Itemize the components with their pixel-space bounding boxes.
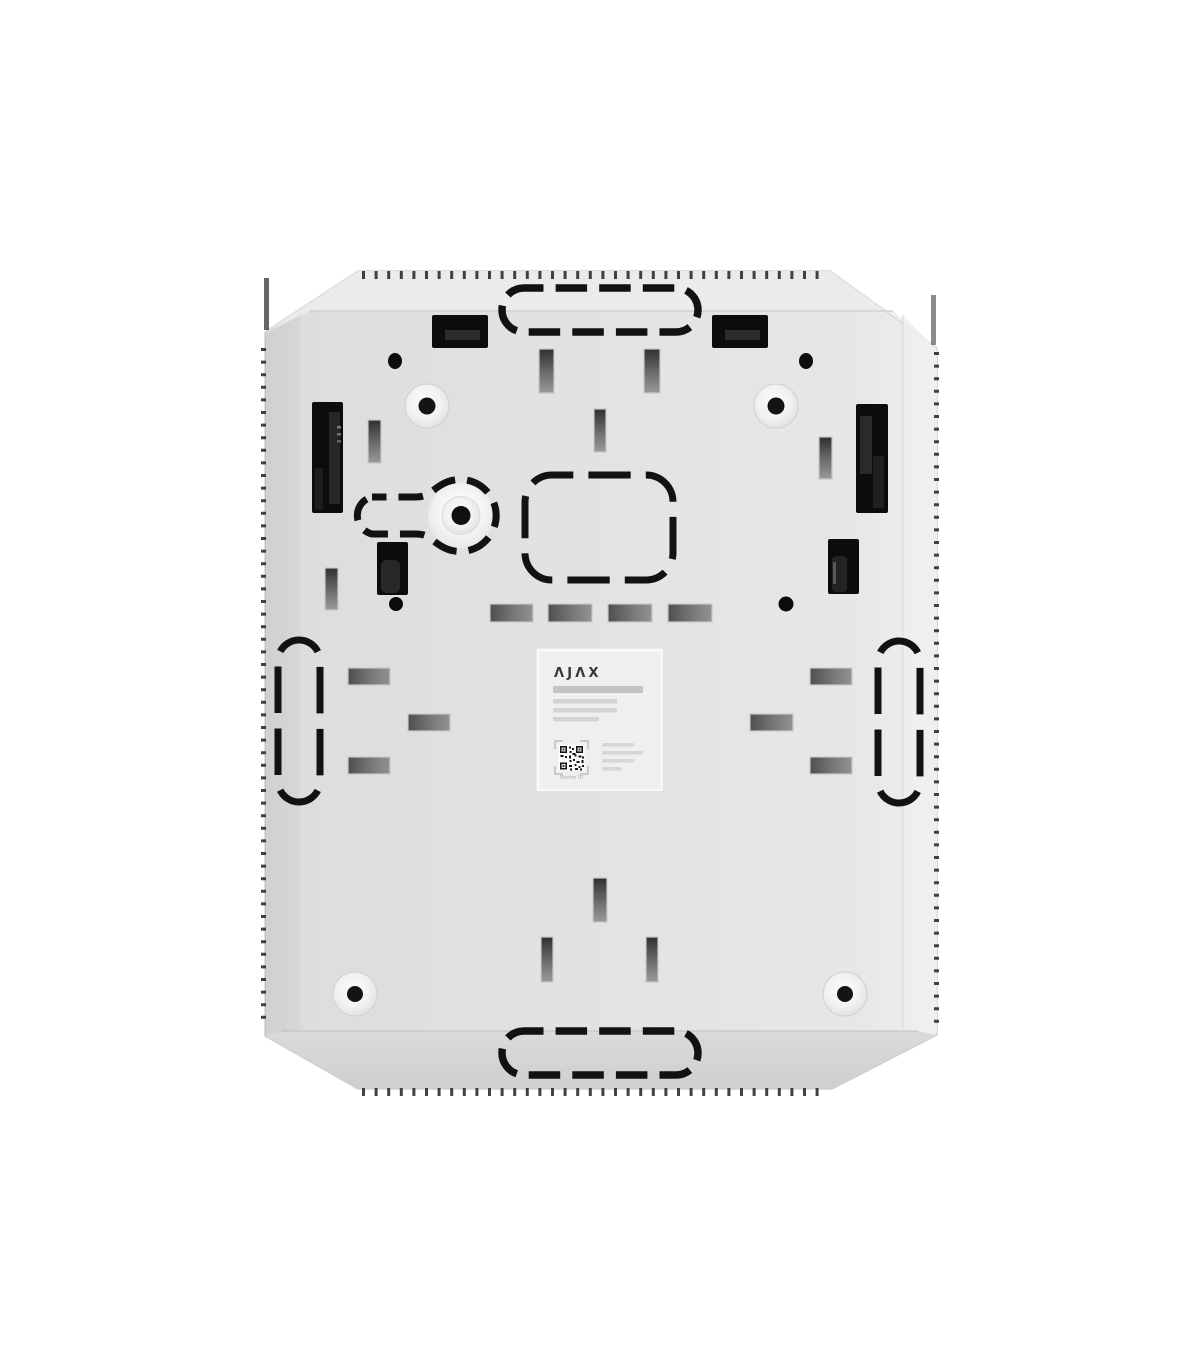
side-opening-left-detail-b: [315, 468, 323, 510]
side-opening-right-detail-a: [860, 416, 872, 474]
panel-left-bevel: [265, 315, 300, 1034]
product-photo: ΛJΛX Device ID: [0, 0, 1200, 1372]
teeth-corner-top-right: [931, 295, 936, 345]
screw-hole-keyhole: [452, 506, 471, 525]
slot-lower-left: [325, 568, 338, 610]
slot-side-left-top: [348, 668, 390, 685]
slot-row-1: [490, 604, 533, 622]
hole-top-right: [799, 353, 813, 369]
slot-left-connector: [368, 420, 381, 463]
top-clip-inner-right: [725, 330, 760, 340]
screw-boss-top-right: [754, 384, 798, 428]
side-opening-left-tick3: [337, 440, 341, 443]
slot-bottom-left: [541, 937, 553, 982]
hole-mid-left: [389, 597, 403, 611]
label-right-line-2: [602, 751, 643, 755]
slot-side-right-bottom: [810, 757, 852, 774]
screw-hole-bottom-right: [837, 986, 853, 1002]
label-line-1: [553, 699, 617, 704]
slot-bottom-center: [593, 878, 607, 922]
side-opening-left-tick1: [337, 426, 341, 429]
label-line-3: [553, 717, 599, 722]
screw-boss-bottom-left: [333, 972, 377, 1016]
screw-boss-bottom-right: [823, 972, 867, 1016]
slot-right-connector: [819, 437, 832, 479]
slot-top-right: [644, 349, 660, 393]
teeth-corner-top-left: [264, 278, 269, 330]
panel-bottom-bevel: [265, 1031, 937, 1089]
label-line-2: [553, 708, 617, 713]
slot-side-left-mid: [408, 714, 450, 731]
side-opening-left-detail-a: [329, 412, 340, 504]
screw-boss-top-left: [405, 384, 449, 428]
slot-upper-center: [594, 409, 606, 452]
slot-side-right-top: [810, 668, 852, 685]
label-right-line-4: [602, 767, 622, 771]
label-right-line-1: [602, 743, 634, 747]
hole-mid-right: [779, 597, 794, 612]
slot-side-left-bottom: [348, 757, 390, 774]
screw-hole-top-right: [768, 398, 785, 415]
screw-hole-bottom-left: [347, 986, 363, 1002]
slot-top-left: [539, 349, 554, 393]
product-label: ΛJΛX Device ID: [537, 649, 664, 792]
hole-top-left: [388, 353, 402, 369]
slot-row-4: [668, 604, 712, 622]
ajax-logo: ΛJΛX: [554, 666, 602, 681]
smartbracket-back-panel: ΛJΛX Device ID: [0, 0, 1200, 1372]
screw-hole-top-left: [419, 398, 436, 415]
slot-row-3: [608, 604, 652, 622]
side-opening-right-detail-b: [873, 456, 884, 508]
slot-bottom-right: [646, 937, 658, 982]
lower-opening-left-tab: [381, 560, 400, 593]
slot-side-right-mid: [750, 714, 793, 731]
side-opening-left-tick2: [337, 433, 341, 436]
label-right-line-3: [602, 759, 634, 763]
qr-code: Device ID: [555, 741, 588, 781]
lower-opening-right-glint: [833, 562, 836, 584]
label-title-bar: [553, 686, 643, 693]
slot-row-2: [548, 604, 592, 622]
device-id-caption: Device ID: [560, 775, 584, 781]
top-clip-inner-left: [445, 330, 480, 340]
